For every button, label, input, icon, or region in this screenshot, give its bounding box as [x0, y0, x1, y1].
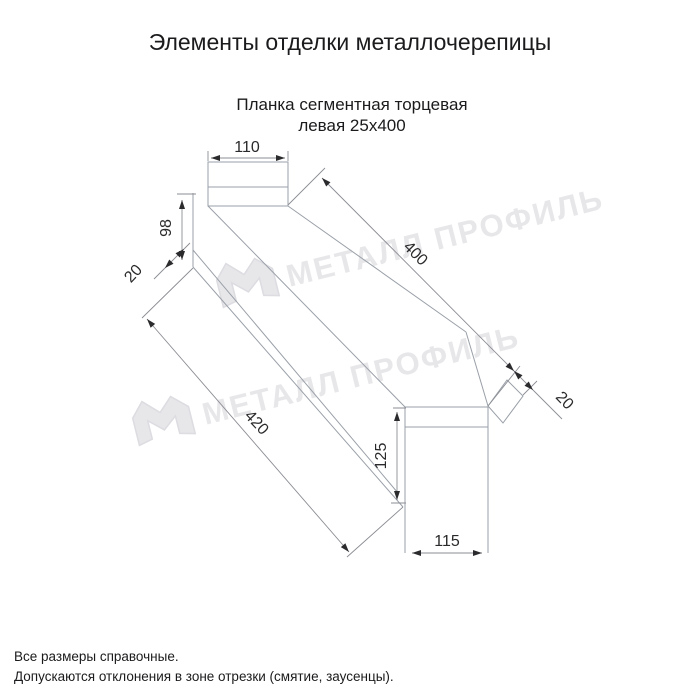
extension-line	[523, 381, 537, 395]
dimension-label-125: 125	[373, 443, 390, 470]
dimension-label-110: 110	[234, 139, 260, 156]
dimension-line	[514, 371, 533, 390]
dimension-125: 125	[373, 408, 406, 503]
left-flap-rect	[208, 162, 288, 206]
dimension-label-98: 98	[158, 219, 175, 237]
footnote-line2: Допускаются отклонения в зоне отрезки (с…	[14, 669, 394, 684]
dimension-label-20-right: 20	[552, 389, 577, 414]
footnote-line1: Все размеры справочные.	[14, 649, 179, 664]
dimension-line	[165, 249, 184, 268]
dimension-label-115: 115	[434, 533, 460, 550]
extension-line	[391, 408, 406, 503]
dimension-label-20-left: 20	[121, 262, 146, 287]
dimension-20-right: 20	[514, 371, 577, 419]
metall-profil-logo-icon	[129, 391, 195, 447]
dimension-110: 110	[208, 139, 288, 161]
dimension-20-left: 20	[121, 243, 190, 286]
page-title: Элементы отделки металлочерепицы	[149, 29, 552, 55]
right-hem-band	[488, 380, 523, 423]
dimension-98: 98	[158, 194, 196, 260]
dimension-line	[147, 319, 349, 552]
dimension-115: 115	[412, 533, 482, 553]
drawing-page: МЕТАЛЛ ПРОФИЛЬ МЕТАЛЛ ПРОФИЛЬ Элементы о…	[0, 0, 700, 700]
technical-drawing: МЕТАЛЛ ПРОФИЛЬ МЕТАЛЛ ПРОФИЛЬ Элементы о…	[0, 0, 700, 700]
drawing-subtitle-line1: Планка сегментная торцевая	[236, 95, 467, 114]
drawing-subtitle-line2: левая 25х400	[298, 116, 405, 135]
